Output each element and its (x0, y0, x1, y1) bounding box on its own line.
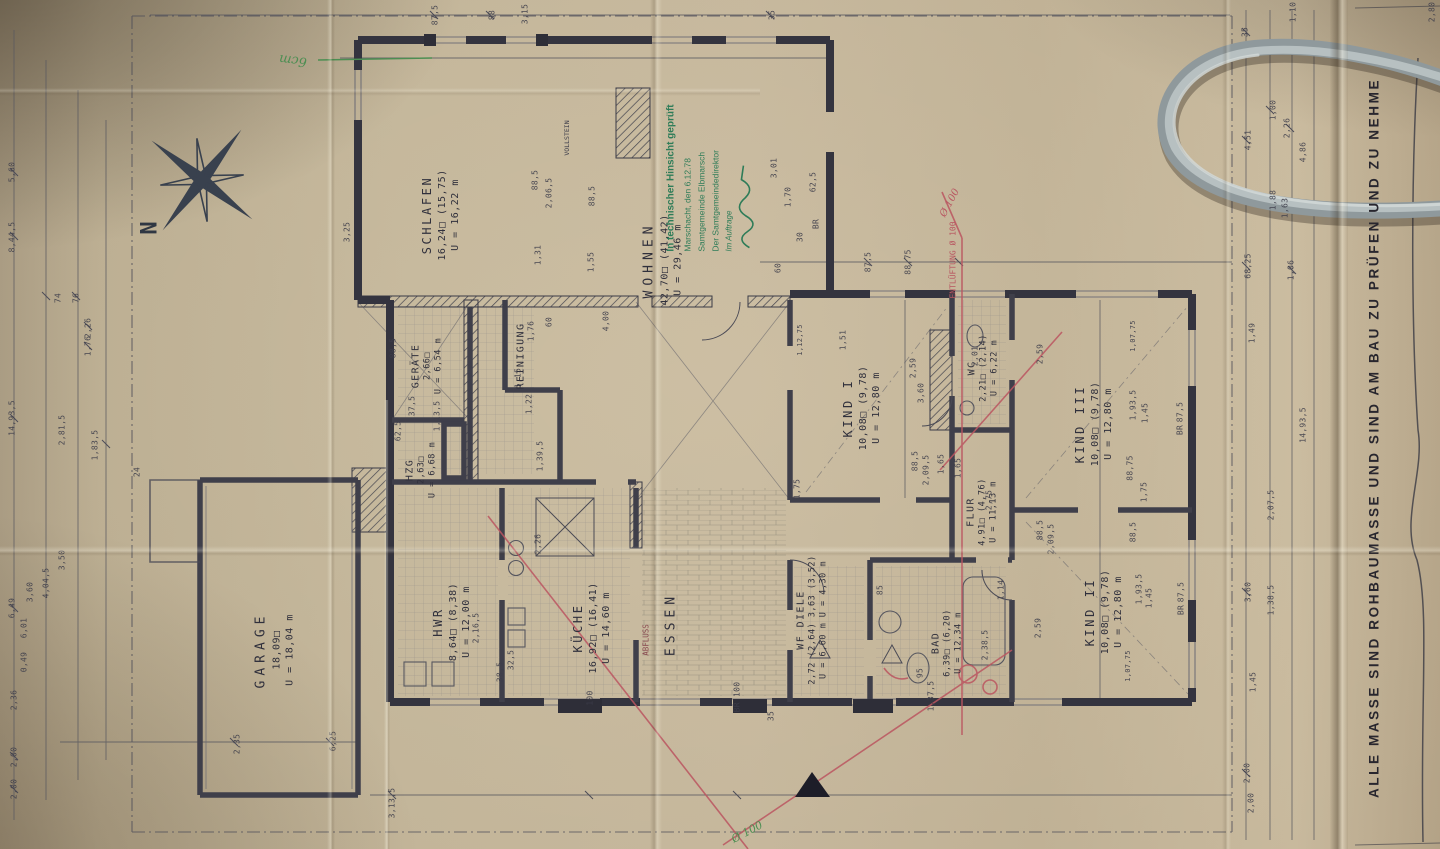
room-label-kueche: KÜCHE 16,92□ (16,41) U = 14,60 m (571, 582, 613, 673)
dimension-label: 1,31 (534, 245, 543, 265)
dimension-label: 1,07,75 (1129, 320, 1137, 352)
dimension-label: 1,13,5 (433, 401, 442, 432)
dimension-label: 88,5 (911, 451, 920, 471)
room-label-wc: WC 2,21□ (2,14) U = 6,22 m (965, 334, 1000, 401)
room-label-bad: BAD 6,39□ (6,20) U = 12,34 m (929, 609, 964, 676)
dimension-label: 2,81,5 (58, 415, 67, 446)
room-label-geraete: GERÄTE 2,66□ U = 6,54 m (409, 338, 444, 394)
dimension-label: 1,76 (84, 336, 93, 356)
dimension-label: 4,51 (1244, 130, 1253, 150)
dimension-label: 87,5 (1176, 402, 1185, 422)
room-label-flur: FLUR 4,91□ (4,76) U = 11,13 m (964, 478, 999, 545)
dimension-label: 3,60 (26, 582, 35, 602)
dimension-label: 1,10 (1289, 2, 1298, 22)
dimension-label: 1,14 (997, 580, 1006, 600)
dimension-label: 2,09,5 (922, 455, 931, 486)
dimension-label: 2,00 (10, 779, 19, 799)
dimension-label: 0,49 (20, 652, 29, 672)
dimension-label: 87,5 (1177, 582, 1186, 602)
dimension-label: 1,83,5 (91, 430, 100, 461)
room-label-kind2: KIND II 10,08□ (9,78) U = 12,80 m (1083, 570, 1125, 655)
dimension-label: 2,80 (1428, 2, 1437, 22)
dimension-label: 1,06 (1287, 260, 1296, 280)
dimension-label: 62,5 (809, 172, 818, 192)
approval-stamp: In technischer Hinsicht geprüft Marschac… (663, 104, 764, 251)
dimension-label: 8,44,5 (8, 222, 17, 253)
dimension-label: 88,75 (1126, 455, 1135, 481)
room-label-essen: ESSEN (664, 592, 681, 656)
dimension-label: 1,51 (839, 330, 848, 350)
dimension-label: 1,88 (1269, 190, 1278, 210)
dimension-label: 1,45 (1249, 672, 1258, 692)
dimension-label: BR (1177, 605, 1186, 615)
dimension-label: 2,26 (1283, 118, 1292, 138)
dimension-label: 1,55 (587, 252, 596, 272)
dimension-label: 88,5 (588, 186, 597, 206)
dimension-label: 85 (876, 585, 885, 595)
cord (1165, 47, 1440, 217)
dimension-label: 6,25 (329, 731, 338, 751)
room-label-garage: GARAGE 18,09□ U = 18,04 m (254, 612, 297, 689)
dimension-label: 2,00 (1247, 793, 1256, 813)
dimension-label: 95 (916, 668, 925, 678)
dimension-label: 1,37,5 (927, 681, 936, 712)
dimension-label: 35 (768, 10, 777, 20)
dimension-label: 35 (1241, 27, 1250, 37)
annotation-label: ABFLUSS (642, 624, 651, 656)
stamp-signature (735, 162, 755, 252)
dimension-label: 3,25 (343, 222, 352, 242)
room-label-schlafen: SCHLAFEN 16,24□ (15,75) U = 16,22 m (420, 169, 462, 260)
dimension-label: 2,06,5 (545, 178, 554, 209)
dimension-label: 3,60 (1244, 582, 1253, 602)
dimension-label: 88,5 (1036, 520, 1045, 540)
compass-rose (112, 90, 292, 270)
dimension-label: 1,49 (1248, 323, 1257, 343)
stamp-line: Samtgemeinde Elbmarsch (694, 104, 708, 251)
annotation-label: ENTLÜFTUNG Ø 100 (949, 221, 958, 298)
dimension-label: 2,09,5 (1047, 524, 1056, 555)
stamp-line: In technischer Hinsicht geprüft (663, 104, 680, 251)
green-leader-line (318, 58, 432, 60)
dimension-label: 32,5 (507, 650, 516, 670)
dimension-label: 60 (774, 263, 783, 273)
dimension-label: 2,26 (534, 534, 543, 554)
dimension-label: 87,5 (431, 5, 440, 25)
dimension-label: 2,59 (909, 358, 918, 378)
floor-plan-photo: 5,608,44,514,93,56,492,002,002,363,606,0… (0, 0, 1440, 849)
dimension-label: 3,15 (521, 4, 530, 24)
dimension-label: 1,00 (1269, 100, 1278, 120)
dimension-label: 87,5 (864, 252, 873, 272)
dimension-label: 1,93,5 (1135, 574, 1144, 605)
dimension-label: 14,93,5 (8, 400, 17, 436)
dimension-label: 3,60 (917, 383, 926, 403)
room-label-hzg: HZG 2,63□ U = 6,68 m (403, 442, 438, 498)
dimension-label: 2,00 (10, 747, 19, 767)
sheet-margin-note: ALLE MASSE SIND ROHBAUMASSE UND SIND AM … (1367, 78, 1382, 798)
dimension-label: 1,63 (1281, 198, 1290, 218)
stamp-line: Marschacht, den 6.12.78 (680, 104, 694, 251)
dimension-label: 1,38,5 (1267, 585, 1276, 616)
dimension-label: 2,38,5 (981, 630, 990, 661)
room-label-hwr: HWR 8,64□ (8,38) U = 12,00 m (431, 583, 473, 661)
dimension-label: 1,45 (1145, 588, 1154, 608)
dimension-label: 6,01 (20, 618, 29, 638)
dimension-label: 76 (72, 293, 81, 303)
dimension-label: 88,5 (1129, 522, 1138, 542)
dimension-label: 2,59 (1034, 618, 1043, 638)
dimension-label: 35 (767, 711, 776, 721)
dimension-label: 1,07,75 (1124, 650, 1132, 682)
dimension-label: 100 (586, 690, 595, 705)
dimension-label: BR 100 (733, 682, 742, 713)
dimension-label: 88 (488, 10, 497, 20)
dimension-label: 1,22 (525, 394, 534, 414)
dimension-label: 24 (133, 467, 142, 477)
room-label-reinigung: REINIGUNG (515, 323, 528, 390)
dimension-label: 5,60 (8, 162, 17, 182)
dimension-label: 1,39,5 (536, 441, 545, 472)
dimension-label: 1,93,5 (1129, 390, 1138, 421)
dimension-label: 2,36 (10, 690, 19, 710)
dimension-label: 60 (545, 317, 554, 327)
room-label-kind1: KIND I 10,08□ (9,78) U = 12,80 m (841, 366, 883, 451)
dimension-label: 1,75 (793, 479, 802, 499)
stamp-line: Im Auftrage (722, 104, 735, 251)
room-label-wf-diele: WF DIELE 2,72 (2,64) 3,63 (3,52) U = 6,6… (794, 555, 829, 684)
dimension-label: 4,86 (1299, 142, 1308, 162)
dimension-label: 1,65 (937, 454, 946, 474)
dimension-label: 30 (796, 232, 805, 242)
dimension-label: 88,5 (389, 338, 398, 358)
dimension-label: 1,76 (527, 321, 536, 341)
dimension-label: 14,93,5 (1299, 407, 1308, 443)
dimension-label: 38,5 (496, 662, 505, 682)
room-label-kind3: KIND III 10,08□ (9,78) U = 12,80 m (1073, 382, 1115, 467)
dimension-label: BR (1176, 425, 1185, 435)
dimension-label: 2,07,5 (1267, 490, 1276, 521)
annotation-label: VOLLSTEIN (563, 120, 571, 155)
dimension-label: 1,70 (784, 187, 793, 207)
annotation-label: 6cm (278, 51, 308, 69)
dimension-label: 74 (54, 293, 63, 303)
compass-north-label: N (138, 221, 163, 234)
dimension-label: 1,12,75 (796, 324, 804, 356)
dimension-label: 3,13,5 (388, 788, 397, 819)
dimension-label: 88,75 (904, 249, 913, 275)
dimension-label: 6,49 (8, 598, 17, 618)
dimension-label: 68,25 (1244, 253, 1253, 279)
stamp-line: Der Samtgemeindedirektor (708, 104, 722, 251)
dimension-label: 3,01 (770, 158, 779, 178)
dimension-label: 62,5 (394, 421, 403, 441)
dimension-label: 1,65 (954, 458, 963, 478)
dimension-label: 37,5 (408, 396, 417, 416)
dimension-label: 4,04,5 (42, 568, 51, 599)
dimension-label: 2,00 (1243, 763, 1252, 783)
dimension-label: 1,75 (1140, 482, 1149, 502)
dimension-label: BR (812, 219, 821, 229)
dimension-label: 4,00 (602, 311, 611, 331)
dimension-label: 2,16,5 (472, 613, 481, 644)
dimension-label: 2,35 (233, 734, 242, 754)
dimension-label: 1,45 (1141, 403, 1150, 423)
dimension-label: 2,59 (1036, 344, 1045, 364)
dimension-label: 3,50 (58, 550, 67, 570)
sheet-edge-line (1411, 58, 1424, 842)
dimension-label: 88,5 (531, 170, 540, 190)
